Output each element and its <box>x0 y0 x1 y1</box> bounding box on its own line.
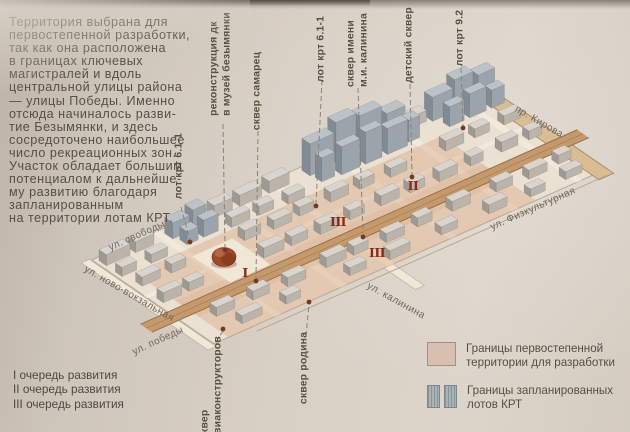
label-skver-samarec: сквер самарец <box>252 52 265 130</box>
label-skver-rodina: сквер родина <box>299 332 312 404</box>
legend-label-krt: Границы запланированных лотов КРТ <box>467 384 613 411</box>
phase-item-3: III очередь развития <box>13 397 124 411</box>
label-lot-krt-92: лот крт 9.2 <box>455 10 468 67</box>
legend-swatch-krt-1 <box>427 385 440 408</box>
phase-item-1: I очередь развития <box>13 368 124 382</box>
legend-swatch-krt <box>427 385 457 408</box>
legend-label-priority: Границы первостепенной территории для ра… <box>466 342 615 369</box>
label-lot-krt-611-top: лот крт 6.1-1 <box>316 16 329 82</box>
legend-item-krt: Границы запланированных лотов КРТ <box>427 384 615 411</box>
legend-swatch-krt-2 <box>444 385 457 408</box>
legend-item-priority: Границы первостепенной территории для ра… <box>427 342 615 369</box>
label-skver-kalinina: сквер имени м.и. калинина <box>345 13 370 87</box>
legend: Границы первостепенной территории для ра… <box>427 342 615 411</box>
label-rekonstrukciya-dk: реконструкция дк в музей безымянки <box>208 12 233 116</box>
label-lot-krt-611-left: лот крт 6.1-1 <box>174 133 187 199</box>
label-detskiy-skver: детский сквер <box>404 7 417 83</box>
phase-marker-3b: III <box>369 245 386 260</box>
phase-marker-1: I <box>242 265 248 280</box>
label-skver-aviakonstruktorov: сквер авиаконструкторов <box>199 336 224 432</box>
phase-marker-3a: III <box>330 214 347 229</box>
phase-item-2: II очередь развития <box>13 382 124 396</box>
phase-marker-2: II <box>408 178 419 193</box>
phase-list: I очередь развития II очередь развития I… <box>13 368 124 411</box>
photo-page: I III III II Территория выбрана для перв… <box>0 0 630 432</box>
legend-swatch-priority <box>427 342 456 366</box>
